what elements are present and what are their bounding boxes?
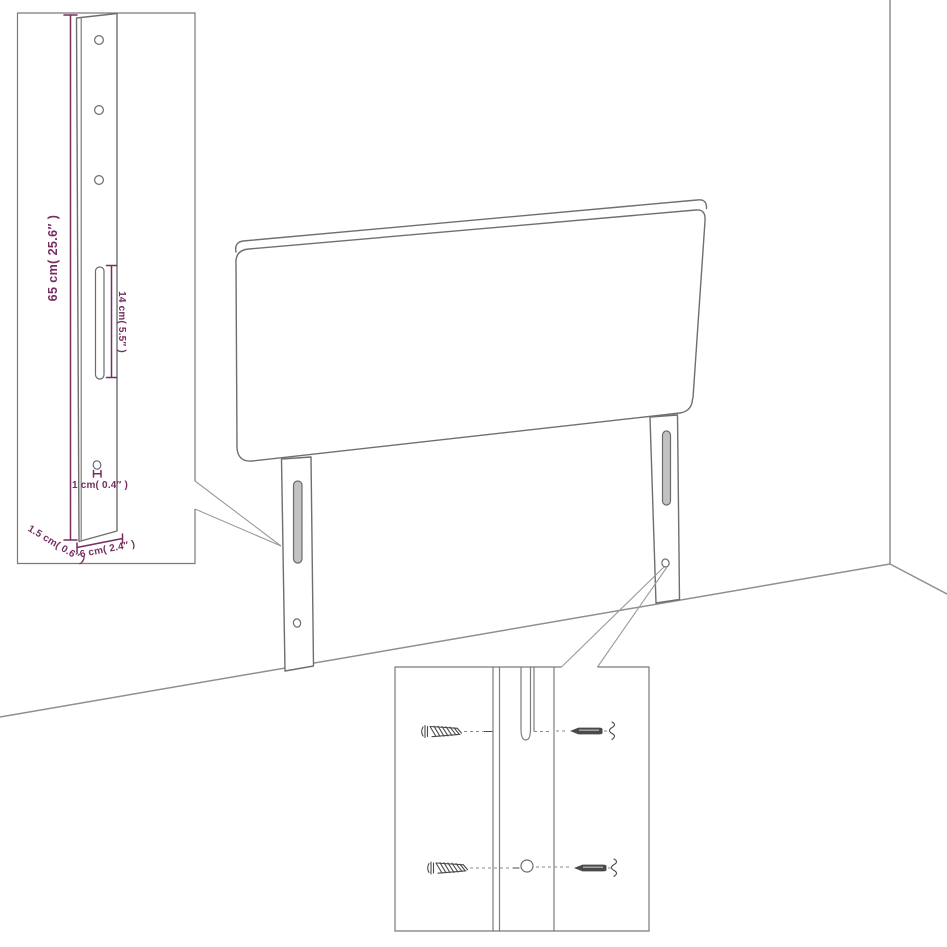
screw-icon bbox=[422, 726, 462, 738]
wall-plug-icon bbox=[570, 728, 603, 735]
right-leg-slot bbox=[663, 431, 671, 505]
strip-hole bbox=[521, 860, 533, 872]
floor-right-line bbox=[890, 564, 947, 594]
headboard-right-leg bbox=[650, 415, 680, 603]
bracket-detail-callout: 65 cm( 25.6″ ) 14 cm( 5.5″ ) 1 cm( 0.4″ … bbox=[18, 13, 196, 566]
screw-callout-pointer-right bbox=[598, 567, 668, 667]
bracket-hole-1 bbox=[95, 36, 104, 45]
headboard-panel bbox=[236, 210, 705, 461]
slot-dimension-label: 14 cm( 5.5″ ) bbox=[116, 291, 127, 353]
height-dimension-label: 65 cm( 25.6″ ) bbox=[46, 215, 60, 302]
wall-plug-icon bbox=[574, 865, 607, 872]
headboard-assembly-diagram: 65 cm( 25.6″ ) 14 cm( 5.5″ ) 1 cm( 0.4″ … bbox=[0, 0, 947, 947]
screw-callout-pointer-left bbox=[562, 567, 665, 667]
bracket-callout-pointer-top bbox=[195, 481, 281, 546]
diagram-canvas: 65 cm( 25.6″ ) 14 cm( 5.5″ ) 1 cm( 0.4″ … bbox=[0, 0, 947, 947]
fastener-row-top bbox=[422, 722, 615, 739]
headboard-left-leg bbox=[282, 457, 314, 671]
headboard bbox=[236, 200, 707, 671]
screw-callout-box bbox=[395, 667, 649, 931]
strip-slot bbox=[521, 667, 531, 740]
plug-end-squiggle-icon bbox=[612, 859, 617, 876]
plug-end-squiggle-icon bbox=[610, 722, 615, 739]
bracket-callout-pointer-bottom bbox=[195, 509, 281, 546]
screw-icon bbox=[428, 862, 468, 874]
height-dimension-line bbox=[64, 15, 77, 540]
screw-detail-callout bbox=[395, 667, 649, 931]
leg-strip-front-view bbox=[493, 667, 554, 931]
hole-dimension-label: 1 cm( 0.4″ ) bbox=[72, 480, 128, 491]
callout-pointer-lines bbox=[195, 481, 667, 667]
floor-left-line bbox=[0, 564, 890, 717]
bracket-hole-2 bbox=[95, 106, 104, 115]
bracket-hole-3 bbox=[95, 176, 104, 185]
left-leg-slot bbox=[294, 481, 303, 563]
bracket-slot bbox=[96, 267, 105, 379]
